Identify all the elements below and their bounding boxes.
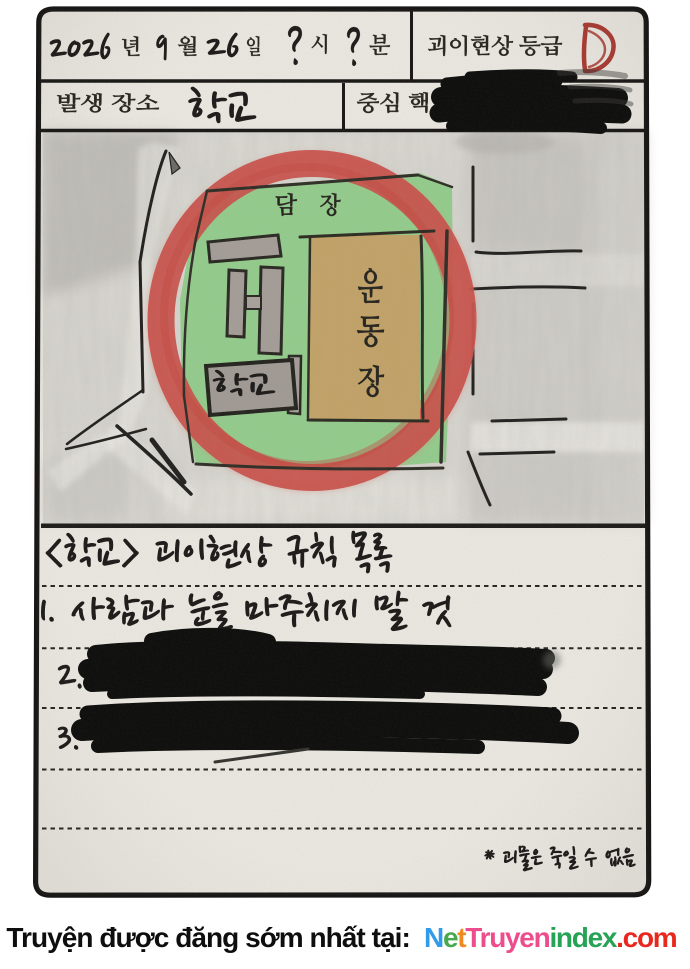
svg-text:Truyện được đăng sớm nhất tại:: Truyện được đăng sớm nhất tại: (6, 922, 409, 953)
svg-text:NetTruyenindex.com: NetTruyenindex.com (424, 922, 677, 953)
